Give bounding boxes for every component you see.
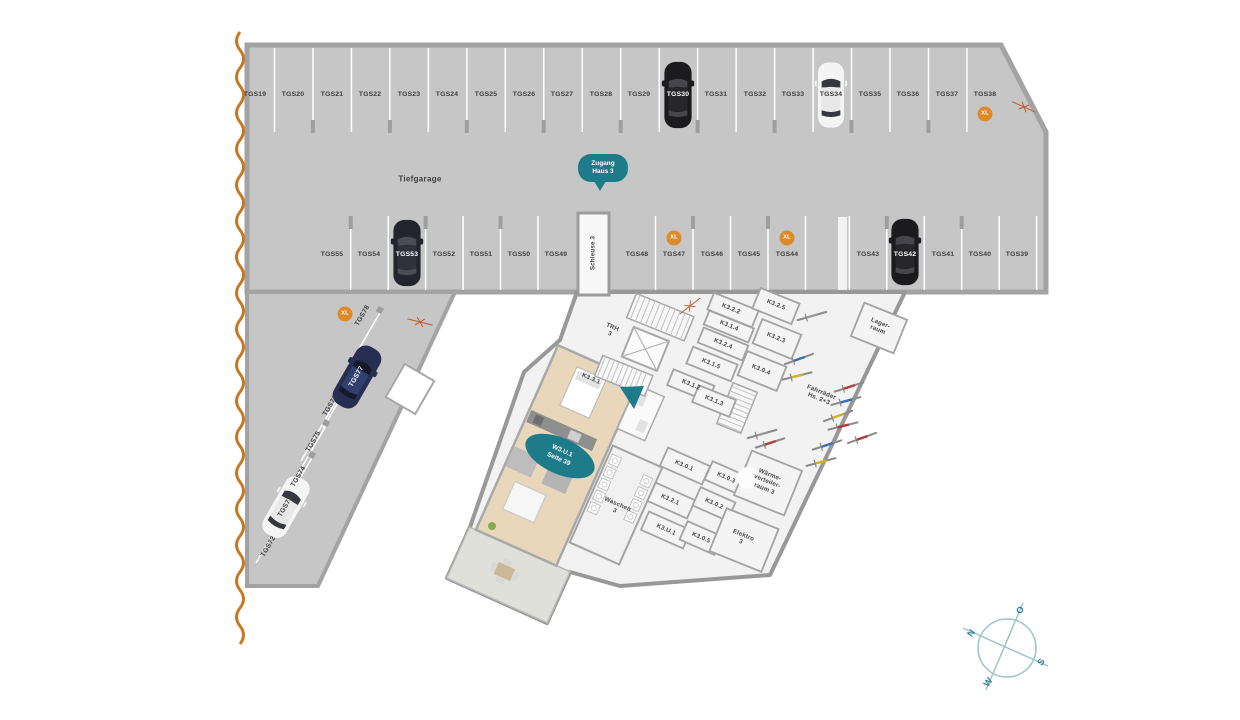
car-dark-tgs53 [391, 220, 423, 286]
ramp-opening [838, 217, 847, 293]
heat-tank [737, 467, 759, 489]
floorplan-drawing [0, 0, 1240, 720]
car-black-tgs42 [889, 219, 921, 285]
tiefgarage-floorplan: TGS19TGS20TGS21TGS22TGS23TGS24TGS25TGS26… [0, 0, 1240, 720]
zugang-badge-line2: Haus 3 [578, 168, 628, 176]
compass [963, 603, 1048, 690]
zugang-badge-line1: Zugang [578, 160, 628, 168]
zugang-haus-3-badge[interactable]: Zugang Haus 3 [578, 154, 628, 182]
boundary-wavy-line [237, 32, 244, 644]
car-white-tgs34 [815, 62, 847, 128]
green-plant [488, 522, 496, 530]
car-black-tgs30 [662, 62, 694, 128]
diagonal-parking-area [247, 292, 455, 586]
schleuse-room [578, 213, 609, 295]
